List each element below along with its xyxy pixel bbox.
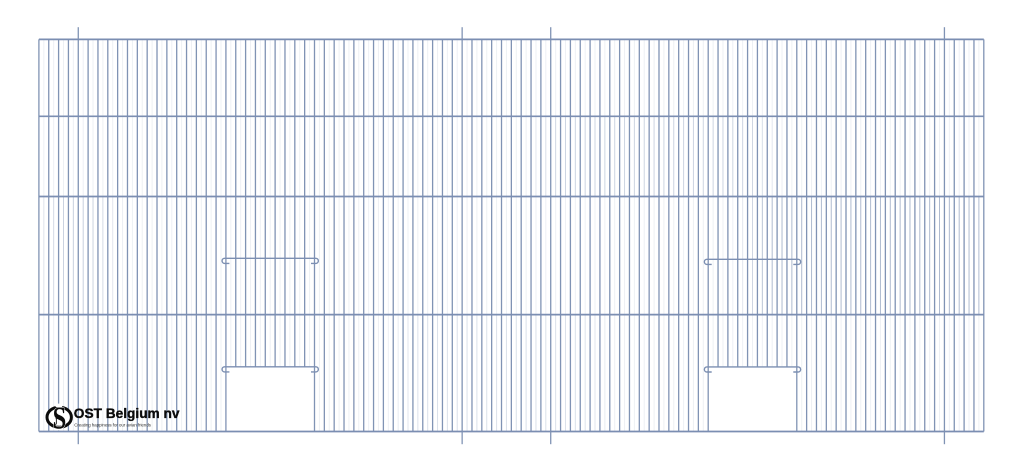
svg-text:Creating happiness for our avi: Creating happiness for our avian friends <box>74 423 151 428</box>
svg-text:OST Belgium nv: OST Belgium nv <box>74 406 180 421</box>
svg-text:J: J <box>54 418 58 428</box>
